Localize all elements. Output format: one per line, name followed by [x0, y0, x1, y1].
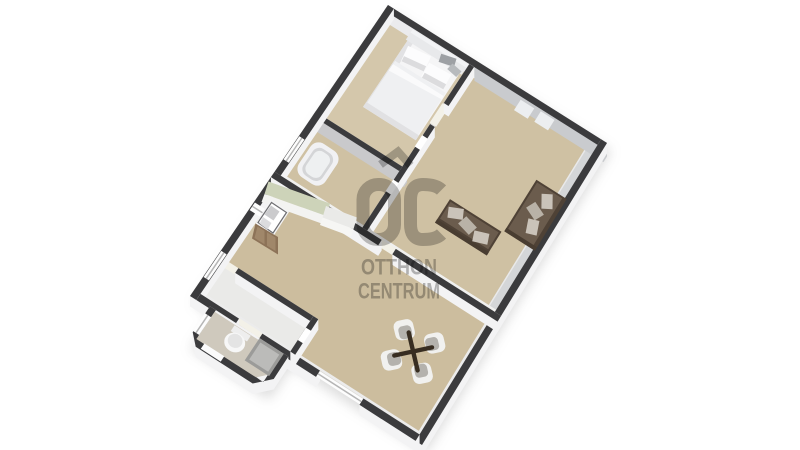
svg-text:CENTRUM: CENTRUM	[358, 279, 440, 304]
svg-text:OTTHON: OTTHON	[361, 255, 437, 280]
